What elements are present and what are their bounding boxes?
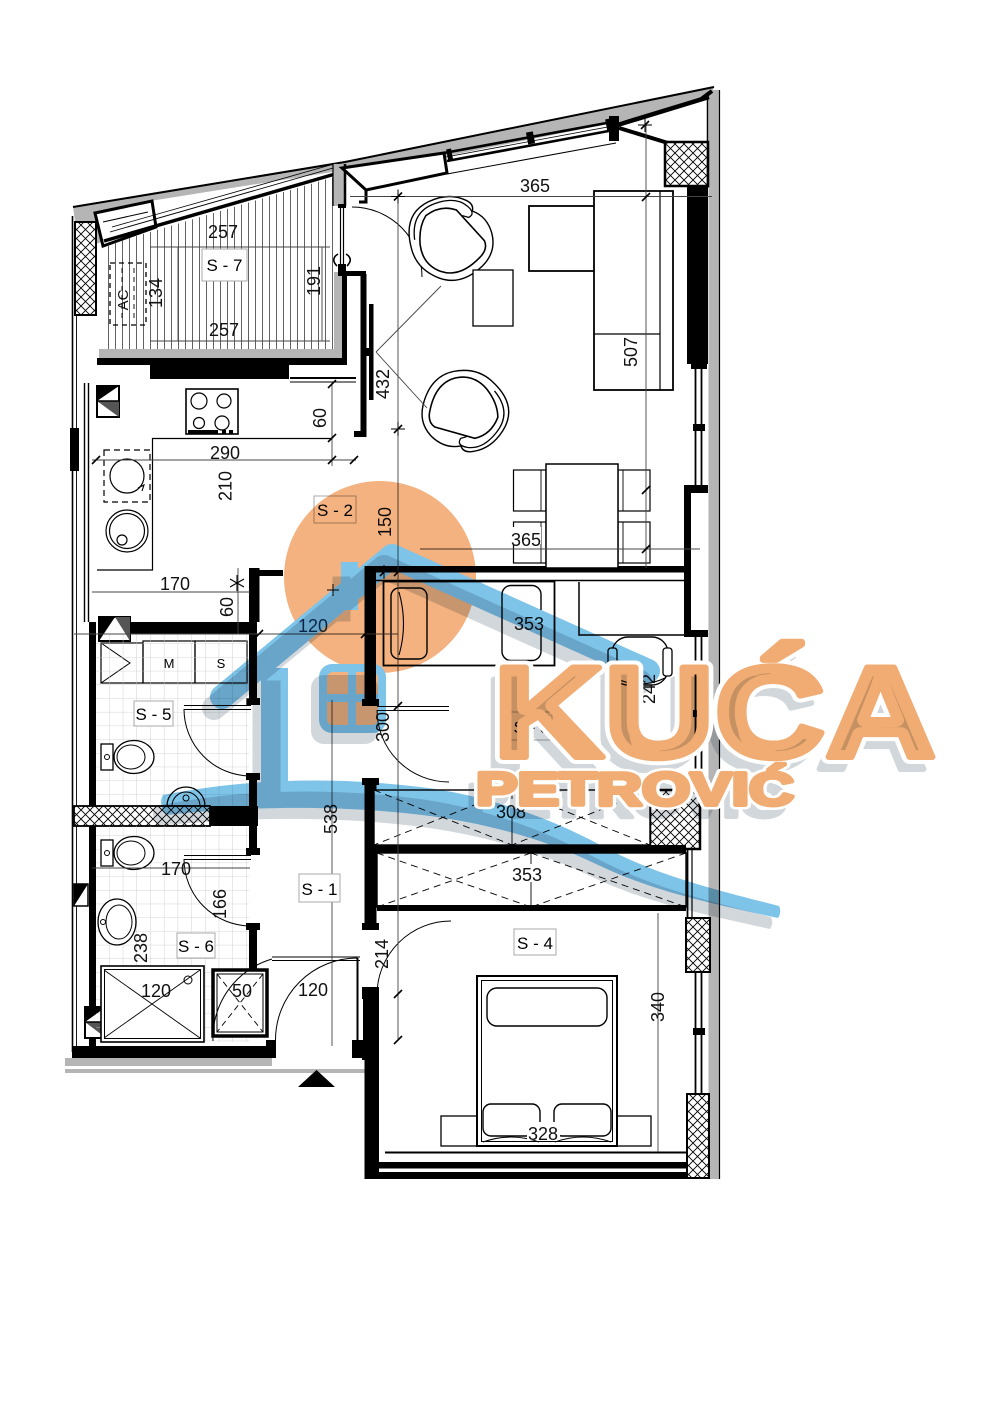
svg-text:432: 432: [373, 369, 393, 399]
svg-text:134: 134: [146, 278, 166, 308]
svg-text:S - 5: S - 5: [136, 705, 172, 724]
svg-text:AC: AC: [115, 289, 132, 310]
svg-text:60: 60: [217, 597, 237, 617]
svg-text:191: 191: [304, 266, 324, 296]
svg-text:257: 257: [209, 320, 239, 340]
svg-text:S - 4: S - 4: [517, 934, 553, 953]
svg-text:238: 238: [131, 933, 151, 963]
svg-text:328: 328: [528, 1124, 558, 1144]
svg-text:120: 120: [141, 981, 171, 1001]
svg-text:365: 365: [511, 530, 541, 550]
svg-text:166: 166: [210, 889, 230, 919]
svg-text:M: M: [164, 656, 175, 671]
svg-text:214: 214: [372, 939, 392, 969]
svg-text:507: 507: [621, 337, 641, 367]
svg-text:S - 6: S - 6: [178, 937, 214, 956]
svg-text:PETROVIĆ: PETROVIĆ: [476, 763, 794, 815]
svg-text:120: 120: [298, 980, 328, 1000]
svg-text:170: 170: [161, 859, 191, 879]
svg-text:290: 290: [210, 443, 240, 463]
svg-text:257: 257: [208, 222, 238, 242]
svg-text:210: 210: [216, 471, 236, 501]
svg-text:S: S: [217, 656, 226, 671]
svg-text:S - 1: S - 1: [302, 880, 338, 899]
svg-text:353: 353: [512, 865, 542, 885]
svg-text:S - 7: S - 7: [207, 256, 243, 275]
svg-text:340: 340: [648, 992, 668, 1022]
svg-text:60: 60: [310, 408, 330, 428]
svg-text:365: 365: [520, 176, 550, 196]
svg-text:50: 50: [232, 981, 252, 1001]
svg-text:170: 170: [160, 574, 190, 594]
